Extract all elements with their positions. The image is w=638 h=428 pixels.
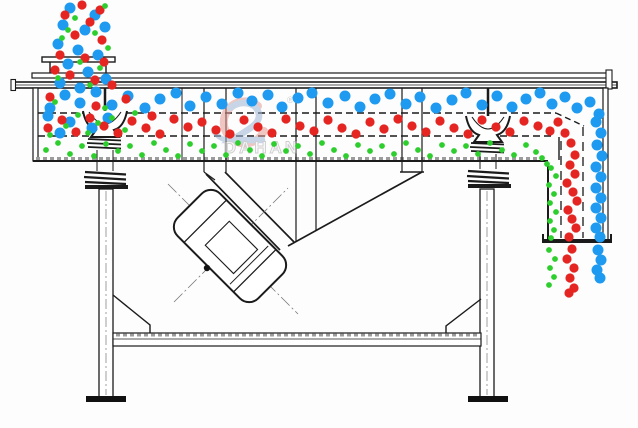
coarse-particle	[415, 92, 426, 103]
medium-particle	[553, 117, 562, 126]
medium-particle	[505, 127, 514, 136]
suspension-spring-left	[83, 88, 128, 187]
fine-particle	[547, 218, 553, 224]
medium-particle	[463, 129, 472, 138]
coarse-particle	[477, 100, 488, 111]
coarse-particle	[596, 255, 607, 266]
coarse-particle	[461, 88, 472, 99]
fine-particle	[97, 65, 103, 71]
medium-particle	[564, 232, 573, 241]
fine-particle	[539, 155, 545, 161]
fine-particle	[47, 132, 53, 138]
fine-particle	[307, 151, 313, 157]
fine-particle	[92, 30, 98, 36]
coarse-particle	[591, 203, 602, 214]
medium-particle	[147, 111, 156, 120]
screen-box-walls	[33, 88, 608, 241]
fine-particle	[211, 143, 217, 149]
medium-particle	[563, 205, 572, 214]
fine-particle	[546, 247, 552, 253]
coarse-particle	[247, 96, 258, 107]
coarse-particle	[547, 99, 558, 110]
medium-particle	[121, 94, 130, 103]
medium-particle	[113, 128, 122, 137]
medium-particle	[564, 288, 573, 297]
fine-particle	[102, 3, 108, 9]
medium-particle	[97, 35, 106, 44]
medium-particle	[253, 122, 262, 131]
fine-particle	[87, 82, 93, 88]
fine-particle	[295, 143, 301, 149]
coarse-particle	[585, 97, 596, 108]
medium-particle	[567, 244, 576, 253]
medium-particle	[309, 126, 318, 135]
medium-particle	[323, 115, 332, 124]
fine-particle	[163, 147, 169, 153]
medium-particle	[141, 123, 150, 132]
medium-particle	[393, 114, 402, 123]
coarse-particle	[591, 117, 602, 128]
medium-particle	[77, 0, 86, 9]
fine-particle	[546, 282, 552, 288]
coarse-particle	[323, 98, 334, 109]
fine-particle	[175, 153, 181, 159]
fine-particle	[551, 191, 557, 197]
fine-particle	[331, 147, 337, 153]
foot-plate-left	[86, 396, 126, 402]
medium-particle	[70, 30, 79, 39]
fine-particle	[85, 130, 91, 136]
coarse-particle	[75, 83, 86, 94]
coarse-particle	[592, 140, 603, 151]
coarse-particle	[171, 88, 182, 99]
medium-particle	[50, 65, 59, 74]
fine-particle	[223, 152, 229, 158]
fine-particle	[547, 265, 553, 271]
coarse-particle	[293, 93, 304, 104]
coarse-particle	[91, 87, 102, 98]
medium-particle	[225, 129, 234, 138]
fine-particle	[55, 140, 61, 146]
coarse-particle	[595, 232, 606, 243]
brace-right	[446, 299, 481, 333]
coarse-particle	[233, 88, 244, 99]
fine-particle	[553, 173, 559, 179]
coarse-particle	[385, 89, 396, 100]
coarse-particle	[595, 273, 606, 284]
vibrating-screen-diagram: ® DAHAN	[0, 0, 638, 428]
medium-particle	[572, 196, 581, 205]
fine-particle	[95, 120, 101, 126]
fine-particle	[77, 59, 83, 65]
medium-particle	[267, 128, 276, 137]
fine-particle	[63, 123, 69, 129]
fine-particle	[391, 151, 397, 157]
medium-particle	[569, 263, 578, 272]
fine-particle	[91, 153, 97, 159]
spring-coil-icon	[470, 143, 504, 153]
coarse-particle	[100, 22, 111, 33]
fine-particle	[551, 274, 557, 280]
medium-particle	[570, 169, 579, 178]
coarse-particle	[277, 102, 288, 113]
medium-particle	[566, 138, 575, 147]
fine-particle	[79, 143, 85, 149]
medium-particle	[71, 127, 80, 136]
fine-particle	[379, 143, 385, 149]
coarse-particle	[75, 98, 86, 109]
fine-particle	[511, 152, 517, 158]
medium-particle	[197, 117, 206, 126]
coarse-particle	[596, 193, 607, 204]
fine-particle	[75, 112, 81, 118]
coarse-particle	[593, 245, 604, 256]
medium-particle	[421, 127, 430, 136]
coarse-particle	[83, 67, 94, 78]
fine-particle	[499, 147, 505, 153]
fine-particle	[415, 147, 421, 153]
coarse-particle	[55, 128, 66, 139]
medium-particle	[435, 116, 444, 125]
fine-particle	[139, 152, 145, 158]
medium-particle	[295, 121, 304, 130]
fine-particle	[547, 200, 553, 206]
medium-particle	[183, 122, 192, 131]
top-cover	[32, 73, 610, 78]
fine-particle	[59, 35, 65, 41]
support-frame	[86, 189, 508, 402]
fine-particle	[546, 182, 552, 188]
fine-particle	[439, 142, 445, 148]
fine-particle	[72, 15, 78, 21]
medium-particle	[239, 115, 248, 124]
medium-particle	[570, 150, 579, 159]
medium-particle	[107, 80, 116, 89]
medium-particle	[281, 114, 290, 123]
coarse-particle	[591, 183, 602, 194]
coarse-particle	[63, 59, 74, 70]
fine-particle	[67, 151, 73, 157]
fine-particle	[403, 140, 409, 146]
fine-particle	[451, 148, 457, 154]
fine-particle	[259, 153, 265, 159]
coarse-particle	[107, 100, 118, 111]
coarse-particle	[596, 128, 607, 139]
medium-particle	[127, 116, 136, 125]
coarse-particle	[521, 94, 532, 105]
medium-particle	[85, 17, 94, 26]
coarse-particle	[340, 91, 351, 102]
fine-particle	[122, 127, 128, 133]
coarse-particle	[492, 91, 503, 102]
fine-particle	[548, 235, 554, 241]
fine-particle	[551, 227, 557, 233]
medium-particle	[351, 129, 360, 138]
coarse-particle	[60, 90, 71, 101]
medium-particle	[477, 115, 486, 124]
medium-particle	[211, 125, 220, 134]
particle-layer	[43, 0, 608, 297]
fine-particle	[187, 141, 193, 147]
support-leg-left	[99, 189, 113, 397]
medium-particle	[60, 10, 69, 19]
medium-particle	[43, 123, 52, 132]
machine-structure	[11, 57, 617, 402]
medium-particle	[567, 214, 576, 223]
fine-particle	[109, 115, 115, 121]
coarse-particle	[401, 99, 412, 110]
fine-particle	[52, 99, 58, 105]
medium-particle	[85, 113, 94, 122]
coarse-particle	[507, 102, 518, 113]
suspension-spring-right	[466, 88, 511, 186]
fine-particle	[367, 148, 373, 154]
medium-particle	[449, 123, 458, 132]
fine-particle	[487, 140, 493, 146]
coarse-particle	[43, 111, 54, 122]
medium-particle	[562, 178, 571, 187]
fine-particle	[132, 110, 138, 116]
fine-particle	[343, 153, 349, 159]
motor-bolt-icon	[204, 265, 210, 271]
fine-particle	[115, 148, 121, 154]
fine-particle	[199, 148, 205, 154]
fine-particle	[523, 142, 529, 148]
medium-particle	[365, 117, 374, 126]
fine-particle	[533, 149, 539, 155]
medium-particle	[337, 123, 346, 132]
medium-particle	[565, 160, 574, 169]
medium-particle	[568, 187, 577, 196]
foot-plate-right	[468, 396, 508, 402]
coarse-particle	[431, 103, 442, 114]
medium-particle	[491, 122, 500, 131]
fine-particle	[235, 140, 241, 146]
brace-left	[113, 295, 150, 333]
fine-particle	[103, 141, 109, 147]
spring-coil-icon	[84, 172, 126, 184]
medium-particle	[155, 129, 164, 138]
fine-particle	[463, 143, 469, 149]
medium-particle	[169, 114, 178, 123]
coarse-particle	[596, 172, 607, 183]
fine-particle	[283, 148, 289, 154]
coarse-particle	[201, 92, 212, 103]
coarse-particle	[370, 94, 381, 105]
fine-particle	[102, 105, 108, 111]
fine-particle	[552, 256, 558, 262]
coarse-particle	[560, 92, 571, 103]
support-leg-right	[480, 189, 494, 397]
medium-particle	[379, 124, 388, 133]
medium-particle	[519, 116, 528, 125]
coarse-particle	[185, 101, 196, 112]
medium-particle	[571, 223, 580, 232]
fine-particle	[43, 147, 49, 153]
fine-particle	[475, 151, 481, 157]
coarse-particle	[140, 103, 151, 114]
fine-particle	[65, 27, 71, 33]
fine-particle	[151, 140, 157, 146]
coarse-particle	[263, 90, 274, 101]
medium-particle	[91, 101, 100, 110]
coarse-particle	[355, 102, 366, 113]
fine-particle	[548, 165, 554, 171]
medium-particle	[407, 121, 416, 130]
coarse-particle	[535, 88, 546, 99]
coarse-particle	[572, 103, 583, 114]
medium-particle	[562, 254, 571, 263]
medium-particle	[533, 121, 542, 130]
fine-particle	[355, 142, 361, 148]
coarse-particle	[217, 99, 228, 110]
diagram-canvas: ® DAHAN	[0, 0, 638, 428]
fine-particle	[247, 147, 253, 153]
fine-particle	[553, 209, 559, 215]
coarse-particle	[591, 162, 602, 173]
coarse-particle	[447, 95, 458, 106]
spring-coil-icon	[467, 171, 509, 183]
coarse-particle	[597, 151, 608, 162]
fine-particle	[55, 75, 61, 81]
fine-particle	[319, 140, 325, 146]
coarse-particle	[155, 94, 166, 105]
medium-particle	[65, 70, 74, 79]
coarse-particle	[73, 45, 84, 56]
medium-particle	[55, 50, 64, 59]
medium-particle	[560, 128, 569, 137]
fine-particle	[105, 45, 111, 51]
fine-particle	[127, 143, 133, 149]
fine-particle	[427, 153, 433, 159]
medium-particle	[545, 126, 554, 135]
coarse-particle	[307, 88, 318, 99]
coarse-particle	[596, 213, 607, 224]
medium-particle	[565, 273, 574, 282]
fine-particle	[271, 141, 277, 147]
